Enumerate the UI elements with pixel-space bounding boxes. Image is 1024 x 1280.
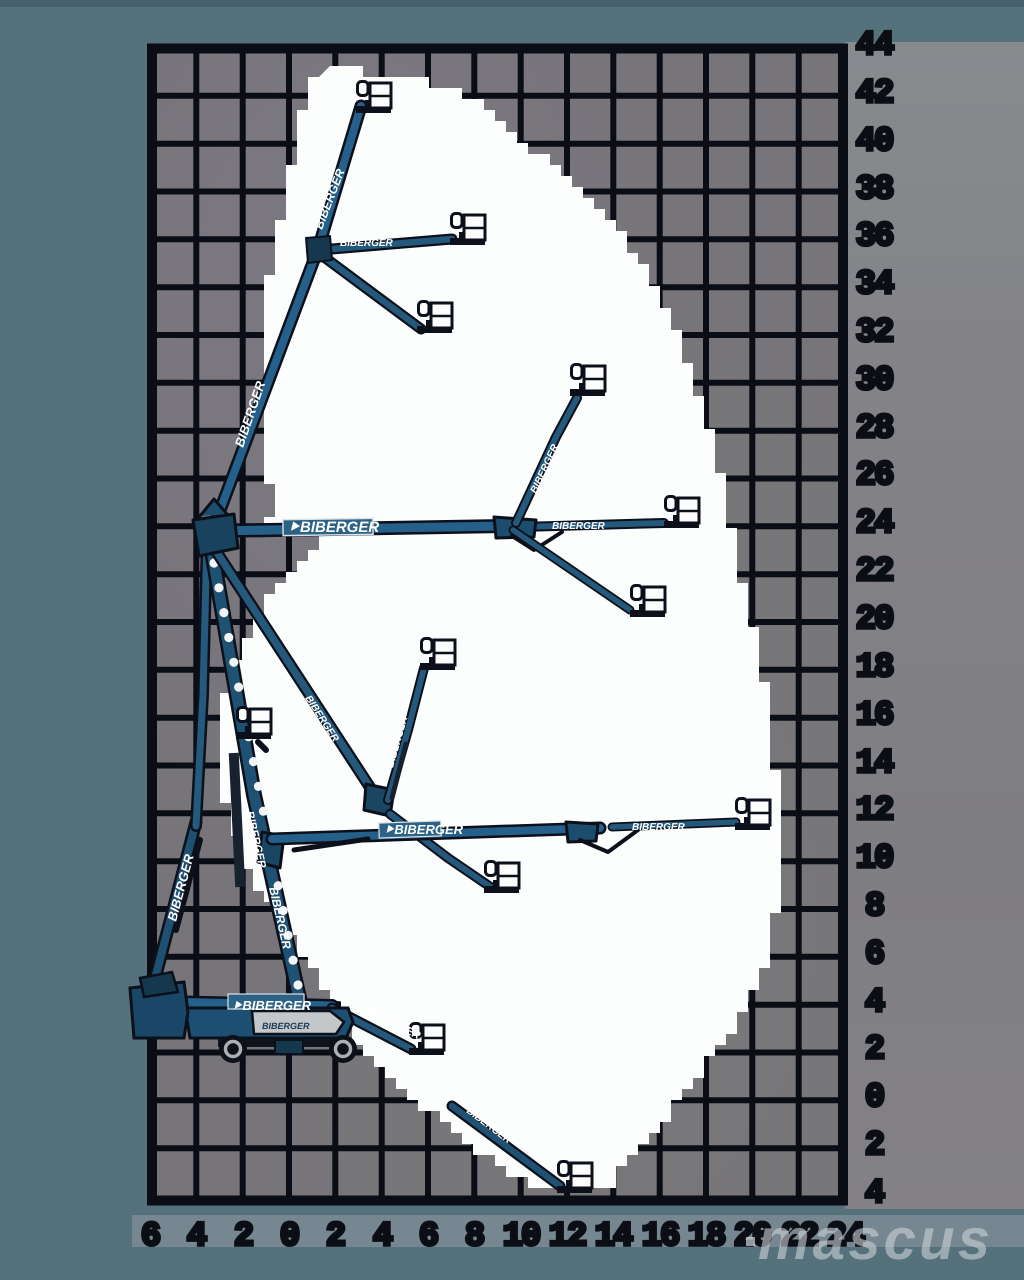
svg-text:⯈BIBERGER: ⯈BIBERGER [232, 998, 312, 1013]
svg-text:6: 6 [419, 1218, 438, 1256]
svg-text:BIBERGER: BIBERGER [552, 521, 606, 532]
svg-text:4: 4 [865, 984, 885, 1022]
svg-text:40: 40 [856, 123, 893, 161]
svg-text:BIBERGER: BIBERGER [262, 1021, 310, 1031]
svg-text:18: 18 [856, 649, 893, 687]
svg-text:18: 18 [688, 1218, 725, 1256]
svg-text:BIBERGER: BIBERGER [340, 238, 394, 249]
svg-text:30: 30 [856, 362, 893, 400]
svg-text:34: 34 [856, 266, 894, 304]
svg-text:44: 44 [856, 27, 894, 65]
svg-text:0: 0 [865, 1079, 884, 1117]
svg-text:10: 10 [856, 840, 893, 878]
svg-text:20: 20 [856, 601, 893, 639]
svg-text:16: 16 [642, 1218, 679, 1256]
svg-text:12: 12 [856, 792, 893, 830]
svg-text:12: 12 [549, 1218, 586, 1256]
svg-text:⯈BIBERGER: ⯈BIBERGER [384, 822, 464, 837]
svg-text:6: 6 [141, 1218, 160, 1256]
svg-text:32: 32 [856, 314, 893, 352]
svg-text:2: 2 [865, 1031, 884, 1069]
svg-text:6: 6 [865, 936, 884, 974]
svg-text:36: 36 [856, 218, 893, 256]
svg-text:38: 38 [856, 171, 893, 209]
svg-text:0: 0 [280, 1218, 299, 1256]
svg-text:4: 4 [187, 1218, 207, 1256]
svg-text:24: 24 [856, 505, 894, 543]
svg-text:26: 26 [856, 457, 893, 495]
svg-text:⯈BIBERGER: ⯈BIBERGER [288, 519, 379, 536]
svg-text:mascus: mascus [758, 1207, 993, 1272]
svg-text:2: 2 [865, 1127, 884, 1165]
svg-text:4: 4 [373, 1218, 393, 1256]
svg-text:8: 8 [865, 888, 884, 926]
svg-text:10: 10 [503, 1218, 540, 1256]
svg-text:14: 14 [856, 745, 894, 783]
svg-text:28: 28 [856, 410, 893, 448]
svg-text:8: 8 [465, 1218, 484, 1256]
svg-text:2: 2 [326, 1218, 345, 1256]
svg-text:BIBERGER: BIBERGER [632, 822, 686, 833]
svg-text:2: 2 [234, 1218, 253, 1256]
svg-text:16: 16 [856, 697, 893, 735]
svg-text:42: 42 [856, 75, 893, 113]
svg-text:14: 14 [595, 1218, 633, 1256]
svg-text:22: 22 [856, 553, 893, 591]
